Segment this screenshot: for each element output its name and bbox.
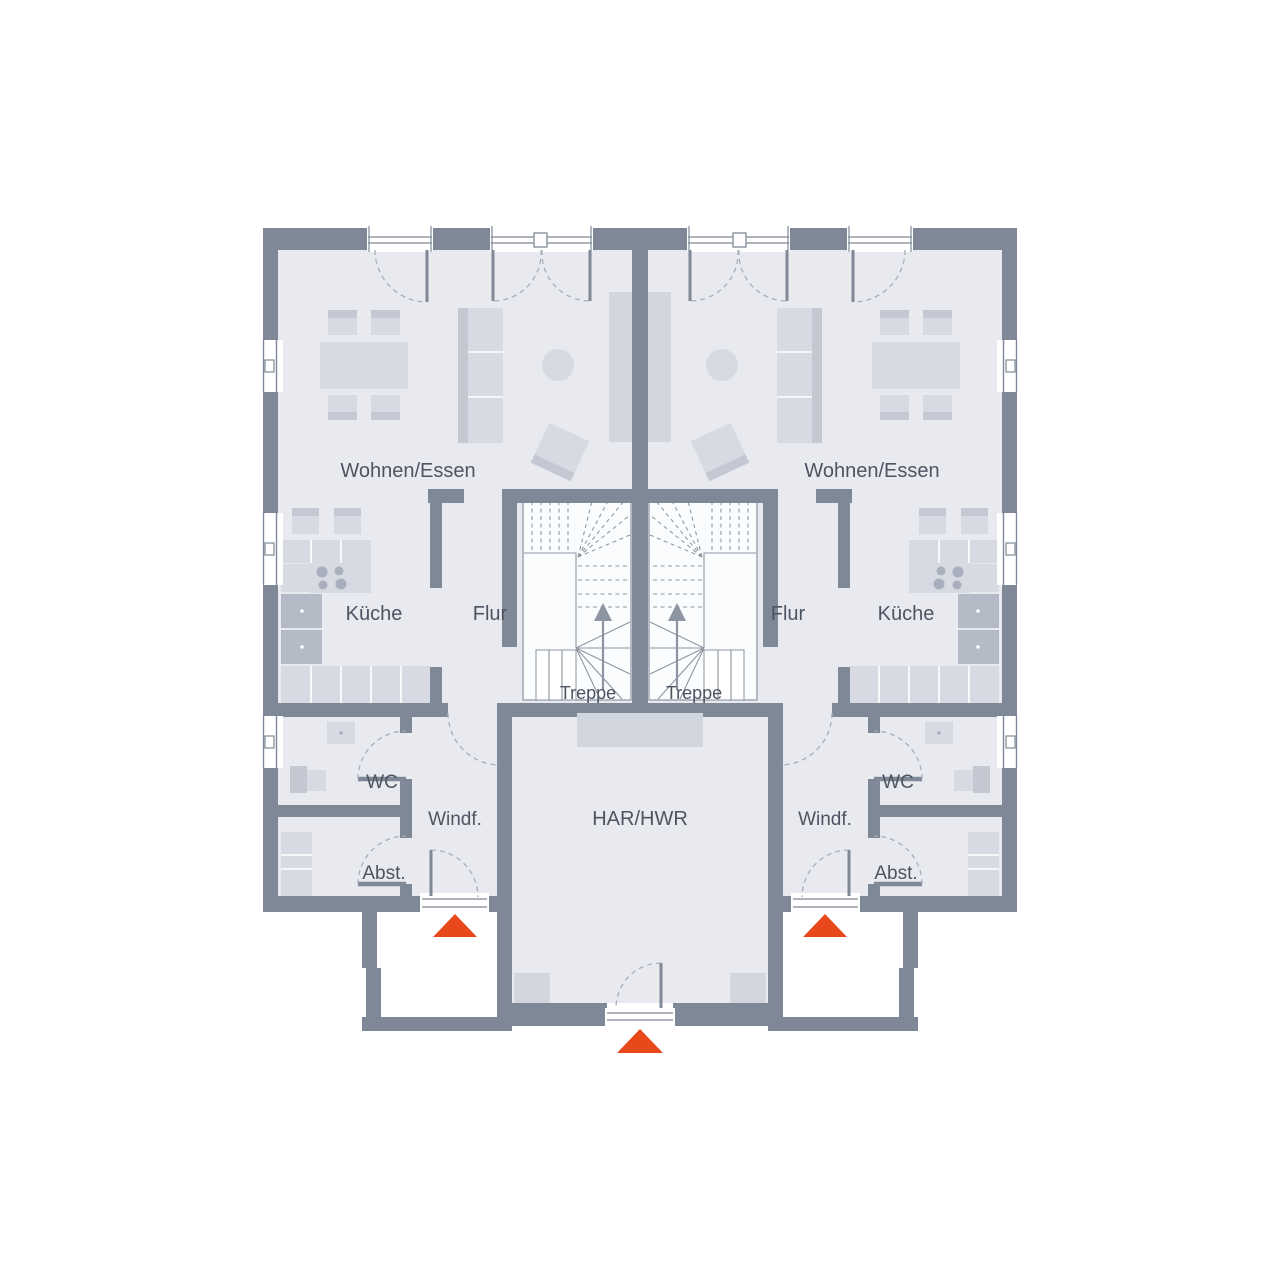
window (997, 513, 1021, 585)
dining-table (320, 342, 408, 389)
wc-toilet-cistern (973, 766, 990, 793)
label-wc-right: WC (882, 772, 914, 793)
sofa (458, 308, 503, 443)
window (259, 716, 283, 768)
label-abst-right: Abst. (874, 863, 917, 884)
label-kueche-left: Küche (346, 603, 403, 625)
wc-toilet-cistern (290, 766, 307, 793)
porch-area (783, 912, 903, 1017)
window (259, 513, 283, 585)
wc-toilet-bowl (307, 770, 326, 791)
window (997, 716, 1021, 768)
label-windf-left: Windf. (428, 809, 482, 830)
staircase (523, 499, 631, 700)
unit-left (259, 226, 640, 1031)
unit-right (640, 226, 1021, 1031)
party-wall (632, 250, 640, 703)
sideboard (648, 292, 671, 442)
har-corner-patch (730, 973, 766, 1003)
har-corner-patch (514, 973, 550, 1003)
label-kueche-right: Küche (878, 603, 935, 625)
porch-area (377, 912, 497, 1017)
sofa (777, 308, 822, 443)
label-wc-left: WC (366, 772, 398, 793)
label-abst-left: Abst. (362, 863, 405, 884)
window (997, 340, 1021, 392)
har-hwr-fill (512, 717, 640, 1003)
label-windf-right: Windf. (798, 809, 852, 830)
round-table (706, 349, 738, 381)
label-treppe-right: Treppe (666, 683, 722, 703)
entrance-arrow (617, 1029, 663, 1053)
party-wall (640, 250, 648, 703)
label-wohnen-essen-left: Wohnen/Essen (340, 460, 475, 482)
stove (310, 563, 358, 593)
storage-shelf (968, 832, 999, 896)
window (259, 340, 283, 392)
label-flur-left: Flur (473, 603, 508, 625)
har-hwr-fill (640, 717, 768, 1003)
round-table (542, 349, 574, 381)
dining-table (872, 342, 960, 389)
label-flur-right: Flur (771, 603, 806, 625)
label-treppe-left: Treppe (560, 683, 616, 703)
har-doormat (577, 713, 703, 747)
storage-shelf (281, 832, 312, 896)
floor-plan-canvas: Wohnen/Essen Wohnen/Essen Küche Küche Fl… (0, 0, 1280, 1280)
sideboard (609, 292, 632, 442)
label-wohnen-essen-right: Wohnen/Essen (804, 460, 939, 482)
label-har-hwr: HAR/HWR (592, 808, 688, 830)
staircase (649, 499, 757, 700)
wc-toilet-bowl (954, 770, 973, 791)
stove (922, 563, 970, 593)
floor-plan-drawing: Wohnen/Essen Wohnen/Essen Küche Küche Fl… (0, 0, 1280, 1280)
